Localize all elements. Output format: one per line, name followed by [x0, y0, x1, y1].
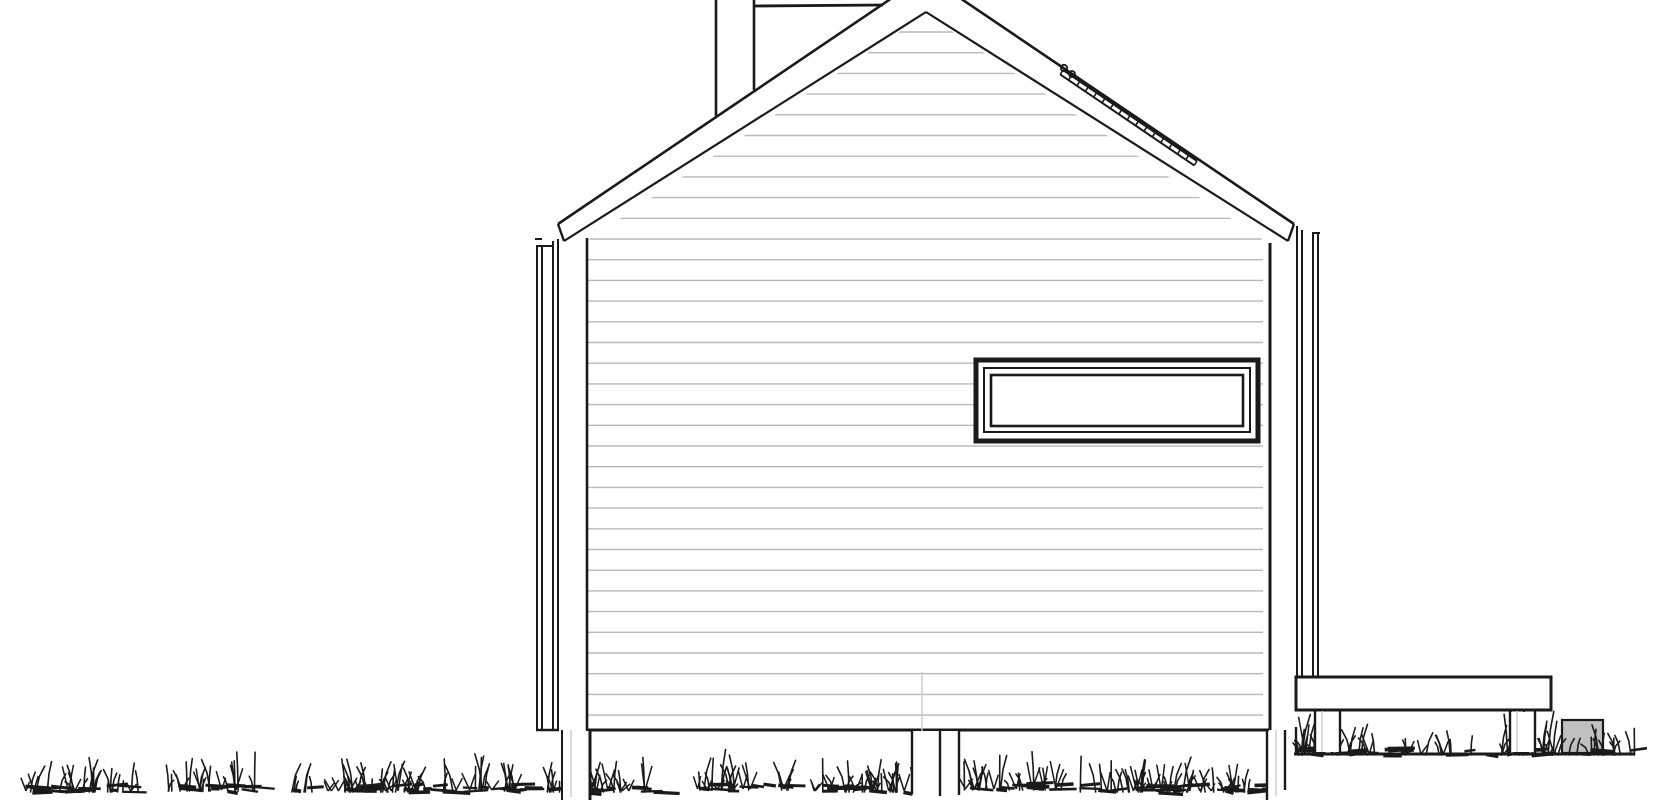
corner-trim-left — [535, 239, 559, 730]
corner-trim-right — [1297, 226, 1320, 677]
window — [976, 360, 1258, 441]
grass — [21, 710, 1647, 795]
architectural-elevation-page — [0, 0, 1670, 800]
wall — [586, 238, 1270, 789]
elevation-svg — [0, 0, 1670, 800]
roof — [558, 0, 1294, 241]
